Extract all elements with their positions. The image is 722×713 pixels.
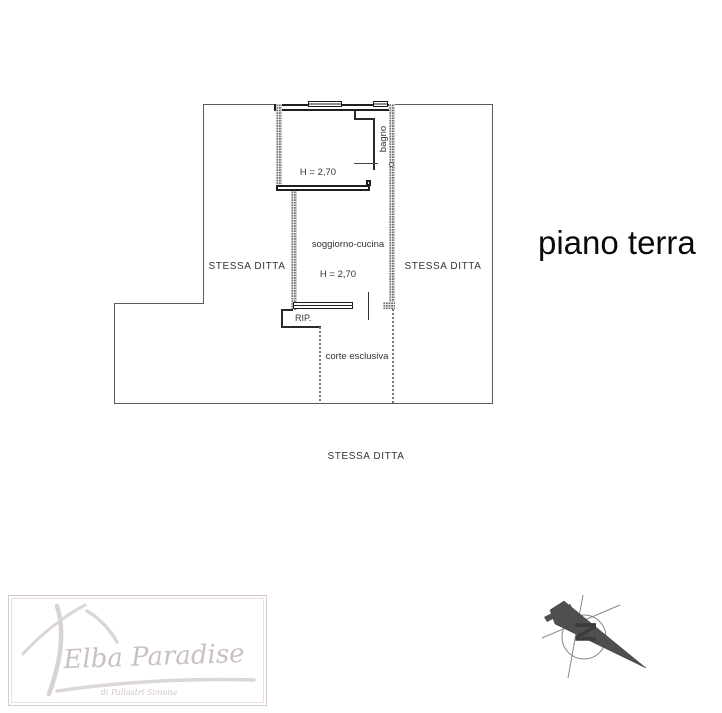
label-height-top-room: H = 2,70 bbox=[278, 167, 358, 178]
boundary-bottom bbox=[114, 403, 493, 404]
boundary-left-upper bbox=[203, 104, 204, 304]
north-arrow-icon: N bbox=[540, 588, 652, 680]
compass-north-letter: N bbox=[569, 621, 602, 643]
door-hinge-icon bbox=[389, 162, 394, 167]
label-bagno: bagno bbox=[378, 117, 390, 161]
floorplan-canvas: H = 2,70 bagno soggiorno-cucina H = 2,70… bbox=[0, 0, 722, 713]
label-stessa-ditta-bottom: STESSA DITTA bbox=[316, 451, 416, 462]
wall-mid-hook bbox=[366, 180, 371, 186]
label-stessa-ditta-left: STESSA DITTA bbox=[197, 261, 297, 272]
boundary-right bbox=[492, 104, 493, 404]
bagno-door-leaf bbox=[354, 163, 378, 164]
rip-wall-bottom bbox=[281, 326, 321, 328]
window-top-right bbox=[373, 101, 388, 107]
window-top-left bbox=[308, 101, 342, 107]
boundary-step bbox=[114, 303, 204, 304]
label-stessa-ditta-right: STESSA DITTA bbox=[393, 261, 493, 272]
label-soggiorno-cucina: soggiorno-cucina bbox=[298, 239, 398, 250]
corte-boundary-left bbox=[319, 327, 321, 403]
boundary-left-lower bbox=[114, 303, 115, 404]
agency-logo: Elba Paradise di Pallastri Simona bbox=[8, 595, 267, 706]
wall-stub-bottom-right bbox=[383, 302, 395, 309]
door-leaf-south bbox=[368, 292, 369, 320]
logo-subtitle-text: di Pallastri Simona bbox=[64, 688, 214, 697]
wall-left-lower-hatched bbox=[291, 191, 297, 310]
label-rip: RIP. bbox=[295, 313, 325, 323]
label-height-soggiorno: H = 2,70 bbox=[298, 269, 378, 280]
window-bottom bbox=[293, 302, 353, 309]
bagno-wall-horizontal bbox=[354, 118, 375, 120]
page-title: piano terra bbox=[538, 224, 696, 262]
label-corte-esclusiva: corte esclusiva bbox=[307, 351, 407, 362]
